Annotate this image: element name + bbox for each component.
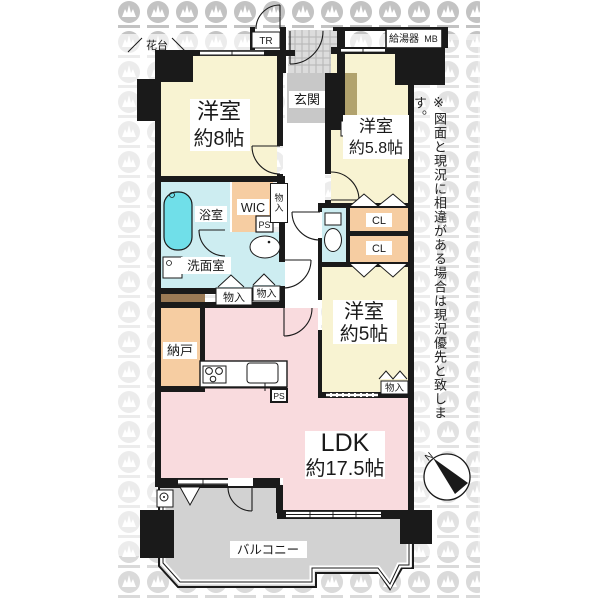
- ps-hall-label: PS: [258, 220, 270, 230]
- cl-lower-label: CL: [372, 243, 386, 255]
- window-bedroom8-top: [200, 51, 264, 56]
- wash-basin: [250, 236, 280, 258]
- bathtub: [164, 192, 192, 250]
- water-heater-label: 給湯器: [389, 32, 419, 45]
- bedroom58-size: 約5.8帖: [349, 139, 403, 157]
- toilet-bowl: [325, 229, 342, 252]
- kitchen-counter: [198, 361, 287, 391]
- meter-box-label: MB: [424, 34, 438, 44]
- bedroom8-size: 約8帖: [193, 127, 244, 150]
- bathroom-label: 浴室: [199, 207, 223, 222]
- toilet-tank: [325, 213, 341, 225]
- balcony-faucet-box: [157, 490, 173, 507]
- ps-kitchen-label: PS: [273, 391, 285, 401]
- wic-label: WIC: [241, 201, 265, 215]
- window-ldk-balcony-sliding: [286, 511, 381, 518]
- monoire-column-label: 物入: [270, 183, 288, 223]
- entrance-label: 玄関: [294, 92, 320, 107]
- storage-room-label: 納戸: [167, 343, 193, 358]
- washroom-label: 洗面室: [187, 258, 225, 273]
- window-bedroom5-ldk: [326, 393, 378, 397]
- floorplan-svg: 花台 TR 給湯器 MB 洋室 約8帖 洋室 約5.8帖 玄関 浴室 WIC P…: [0, 0, 600, 600]
- monoire-bedroom5-label: 物入: [385, 382, 405, 394]
- sink: [247, 363, 278, 383]
- trunk-room-label: TR: [259, 36, 272, 47]
- monoire-right-label: 物入: [257, 287, 277, 300]
- bedroom58-name: 洋室: [359, 117, 393, 136]
- bedroom5-size: 約5帖: [340, 323, 389, 345]
- ldk-name: LDK: [321, 429, 370, 457]
- floorplan-image: 花台 TR 給湯器 MB 洋室 約8帖 洋室 約5.8帖 玄関 浴室 WIC P…: [0, 0, 600, 600]
- cl-upper-label: CL: [372, 215, 386, 227]
- flower-stand-label: 花台: [146, 38, 168, 52]
- ldk-size: 約17.5帖: [306, 457, 385, 480]
- monoire-left-label: 物入: [223, 290, 245, 304]
- disclaimer-note: ※図面と現況に相違がある場合は現況優先と致します。: [429, 96, 449, 444]
- washer-space: [163, 257, 182, 278]
- bedroom8-name: 洋室: [197, 99, 241, 124]
- bedroom5-name: 洋室: [344, 300, 384, 323]
- balcony-label: バルコニー: [237, 543, 299, 557]
- window-bedroom58-top: [341, 48, 385, 53]
- brown-wall-strip: [158, 294, 205, 303]
